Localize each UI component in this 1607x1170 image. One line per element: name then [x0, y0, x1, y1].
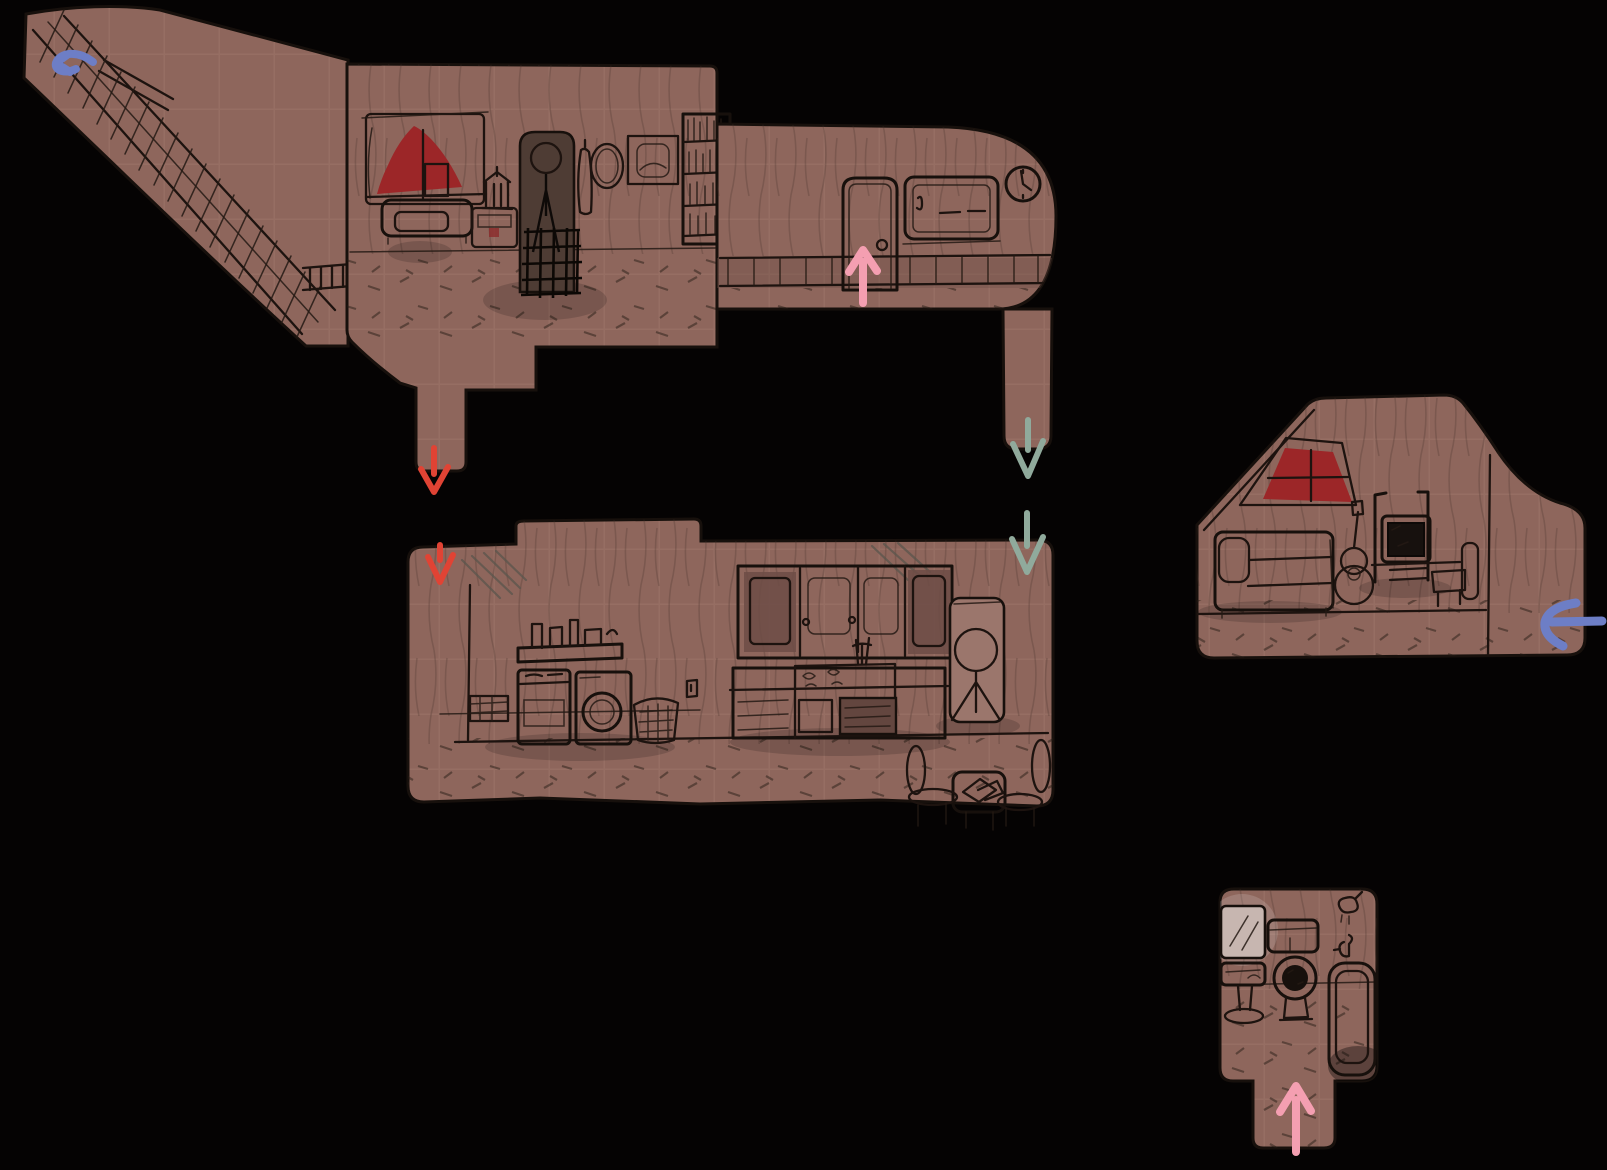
floor-shadow	[485, 733, 675, 761]
mirror-glass	[1221, 906, 1265, 958]
dryer-controls	[580, 677, 600, 678]
chair-legs	[918, 803, 946, 826]
nightstand-red-mark	[489, 228, 499, 237]
upper-bedroom	[347, 64, 730, 471]
table-legs	[966, 812, 993, 830]
cabinet-door-dark-left	[744, 572, 796, 652]
closet	[520, 132, 582, 298]
map-canvas	[0, 0, 1607, 1170]
monitor-screen	[1388, 523, 1424, 556]
attic-bedroom	[1197, 395, 1587, 660]
house-map-drawing	[0, 0, 1607, 1170]
toilet-bowl-dark	[1282, 965, 1308, 991]
hallway	[717, 124, 1057, 449]
kitchen-laundry-room	[408, 519, 1054, 830]
stick-figure-mirror-board	[950, 598, 1004, 722]
bathroom-mirror	[1221, 906, 1265, 958]
